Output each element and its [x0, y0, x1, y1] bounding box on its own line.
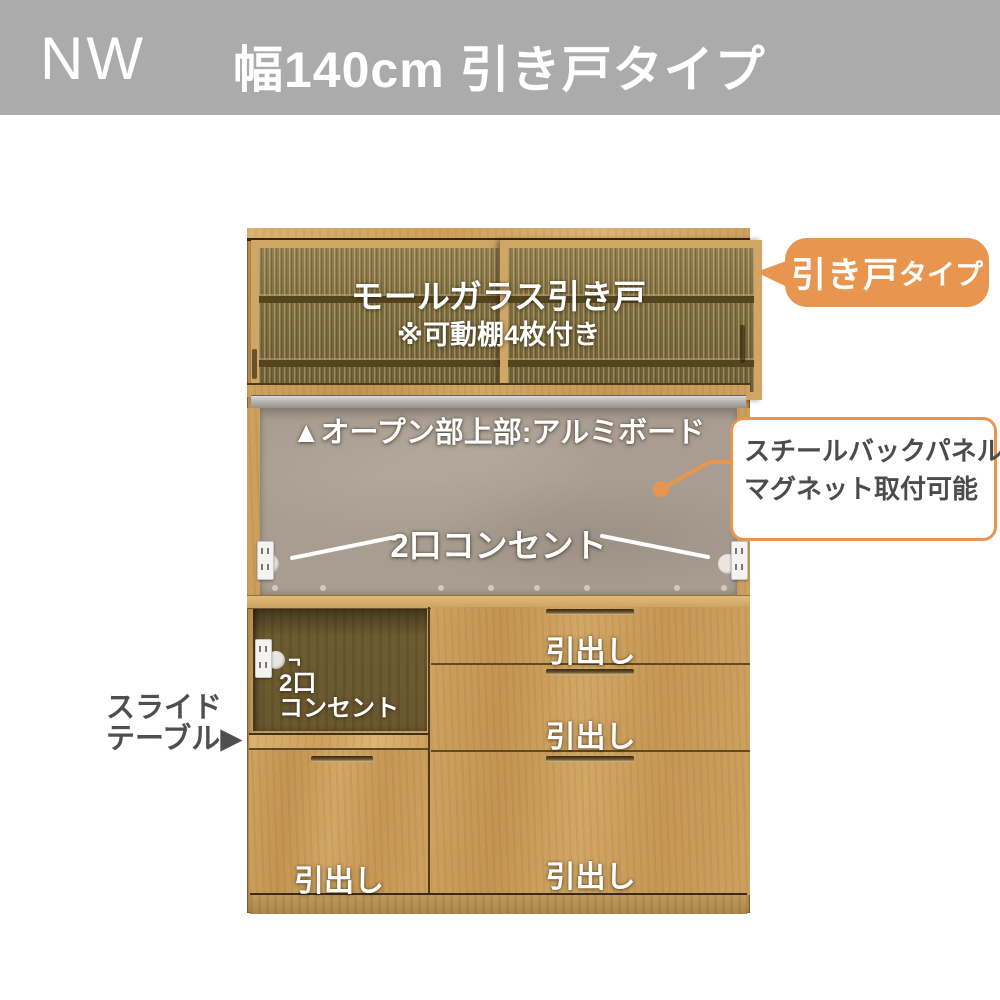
back-panel-callout: スチールバックパネル マグネット取付可能	[730, 417, 997, 541]
drawer-label-3: 引出し	[249, 856, 429, 900]
drawer-handle	[546, 609, 634, 615]
slide-table-line2: テーブル	[106, 723, 220, 755]
product-diagram: NW 幅140cm 引き戸タイプ	[0, 0, 1000, 1000]
power-outlet-recess	[255, 639, 272, 678]
header-band: NW 幅140cm 引き戸タイプ	[0, 0, 1000, 115]
series-name: NW	[40, 24, 146, 93]
recess-outlet-label: ¬ 2口 コンセント	[279, 649, 399, 721]
right-arrow-icon: ▶	[220, 723, 242, 755]
aluminum-board-strip	[251, 395, 746, 409]
screw-dot	[534, 585, 540, 591]
slide-table-line1: スライド	[106, 692, 222, 724]
aluminum-board-label: ▲オープン部上部:アルミボード	[247, 409, 750, 451]
drawer-handle	[546, 756, 634, 762]
screw-dot	[320, 585, 326, 591]
recess-outlet-line2: コンセント	[279, 695, 399, 722]
door-type-callout: 引き戸タイプ	[785, 238, 989, 307]
page-title: 幅140cm 引き戸タイプ	[233, 30, 766, 102]
screw-dot	[584, 585, 590, 591]
outlet-pointer-mark: ¬	[288, 649, 399, 671]
slide-table-label: スライド テーブル▶	[106, 693, 243, 755]
shelf-line	[508, 360, 754, 367]
screw-dot	[674, 585, 680, 591]
screw-dot	[721, 585, 727, 591]
door-type-main: 引き戸	[791, 247, 899, 298]
door-type-sub: タイプ	[899, 253, 983, 293]
screw-dot	[488, 585, 494, 591]
drawer-label-4: 引出し	[431, 852, 750, 896]
drawer-label-2: 引出し	[431, 712, 750, 756]
glass-door-label: モールガラス引き戸	[247, 270, 750, 318]
callout-tail-icon	[756, 260, 789, 288]
screw-dot	[272, 585, 278, 591]
door-finger-groove	[252, 349, 257, 379]
outlet-label: 2口コンセント	[247, 519, 750, 567]
cabinet-column-divider	[428, 607, 430, 893]
cabinet-image: モールガラス引き戸 ※可動棚4枚付き ▲オープン部上部:アルミボード 2口コンセ…	[247, 228, 750, 913]
back-panel-line2: マグネット取付可能	[744, 470, 983, 508]
screw-dot	[438, 585, 444, 591]
drawer-handle	[311, 756, 373, 762]
drawer-label-1: 引出し	[431, 627, 750, 671]
shelf-line	[259, 360, 506, 367]
back-panel-line1: スチールバックパネル	[744, 432, 983, 470]
recess-outlet-line1: 2口	[279, 670, 316, 697]
shelf-note-label: ※可動棚4枚付き	[247, 313, 750, 352]
